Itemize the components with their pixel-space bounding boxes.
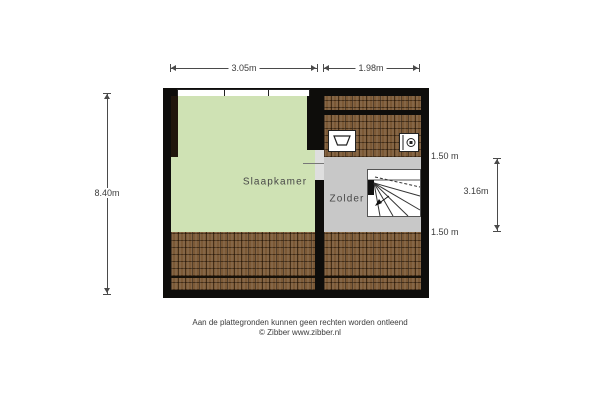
floorplan-interior: Slaapkamer Zolder bbox=[171, 96, 421, 290]
headroom-marker-top: 1.50 m bbox=[431, 151, 459, 161]
floorplan-screenshot: Slaapkamer Zolder bbox=[0, 0, 600, 400]
room-label-zolder: Zolder bbox=[330, 194, 365, 205]
dimension-label: 3.05m bbox=[228, 63, 259, 73]
headroom-line-left bbox=[171, 276, 315, 278]
footer-line2: © Zibber www.zibber.nl bbox=[0, 328, 600, 338]
divider-wall-lower bbox=[315, 180, 324, 290]
room-slaapkamer-floor bbox=[171, 96, 315, 232]
zolder-sloped-floor-bottom bbox=[324, 232, 421, 290]
floorplan-outer-walls: Slaapkamer Zolder bbox=[163, 88, 429, 298]
ventilation-unit-icon bbox=[399, 133, 419, 152]
slaapkamer-sloped-floor bbox=[171, 232, 315, 290]
headroom-marker-bottom: 1.50 m bbox=[431, 227, 459, 237]
sink-icon bbox=[328, 130, 356, 152]
footer-line1: Aan de plattegronden kunnen geen rechten… bbox=[0, 318, 600, 328]
left-knee-wall bbox=[171, 96, 178, 157]
dimension-label: 3.16m bbox=[460, 186, 491, 196]
staircase-icon bbox=[367, 169, 421, 217]
headroom-line-right bbox=[324, 276, 421, 278]
room-label-slaapkamer: Slaapkamer bbox=[243, 177, 307, 188]
door-opening bbox=[315, 150, 324, 180]
footer-disclaimer: Aan de plattegronden kunnen geen rechten… bbox=[0, 318, 600, 338]
divider-wall-upper bbox=[307, 96, 324, 150]
dimension-label: 8.40m bbox=[91, 188, 122, 198]
dimension-label: 1.98m bbox=[355, 63, 386, 73]
knee-wall-line-top bbox=[324, 110, 421, 115]
